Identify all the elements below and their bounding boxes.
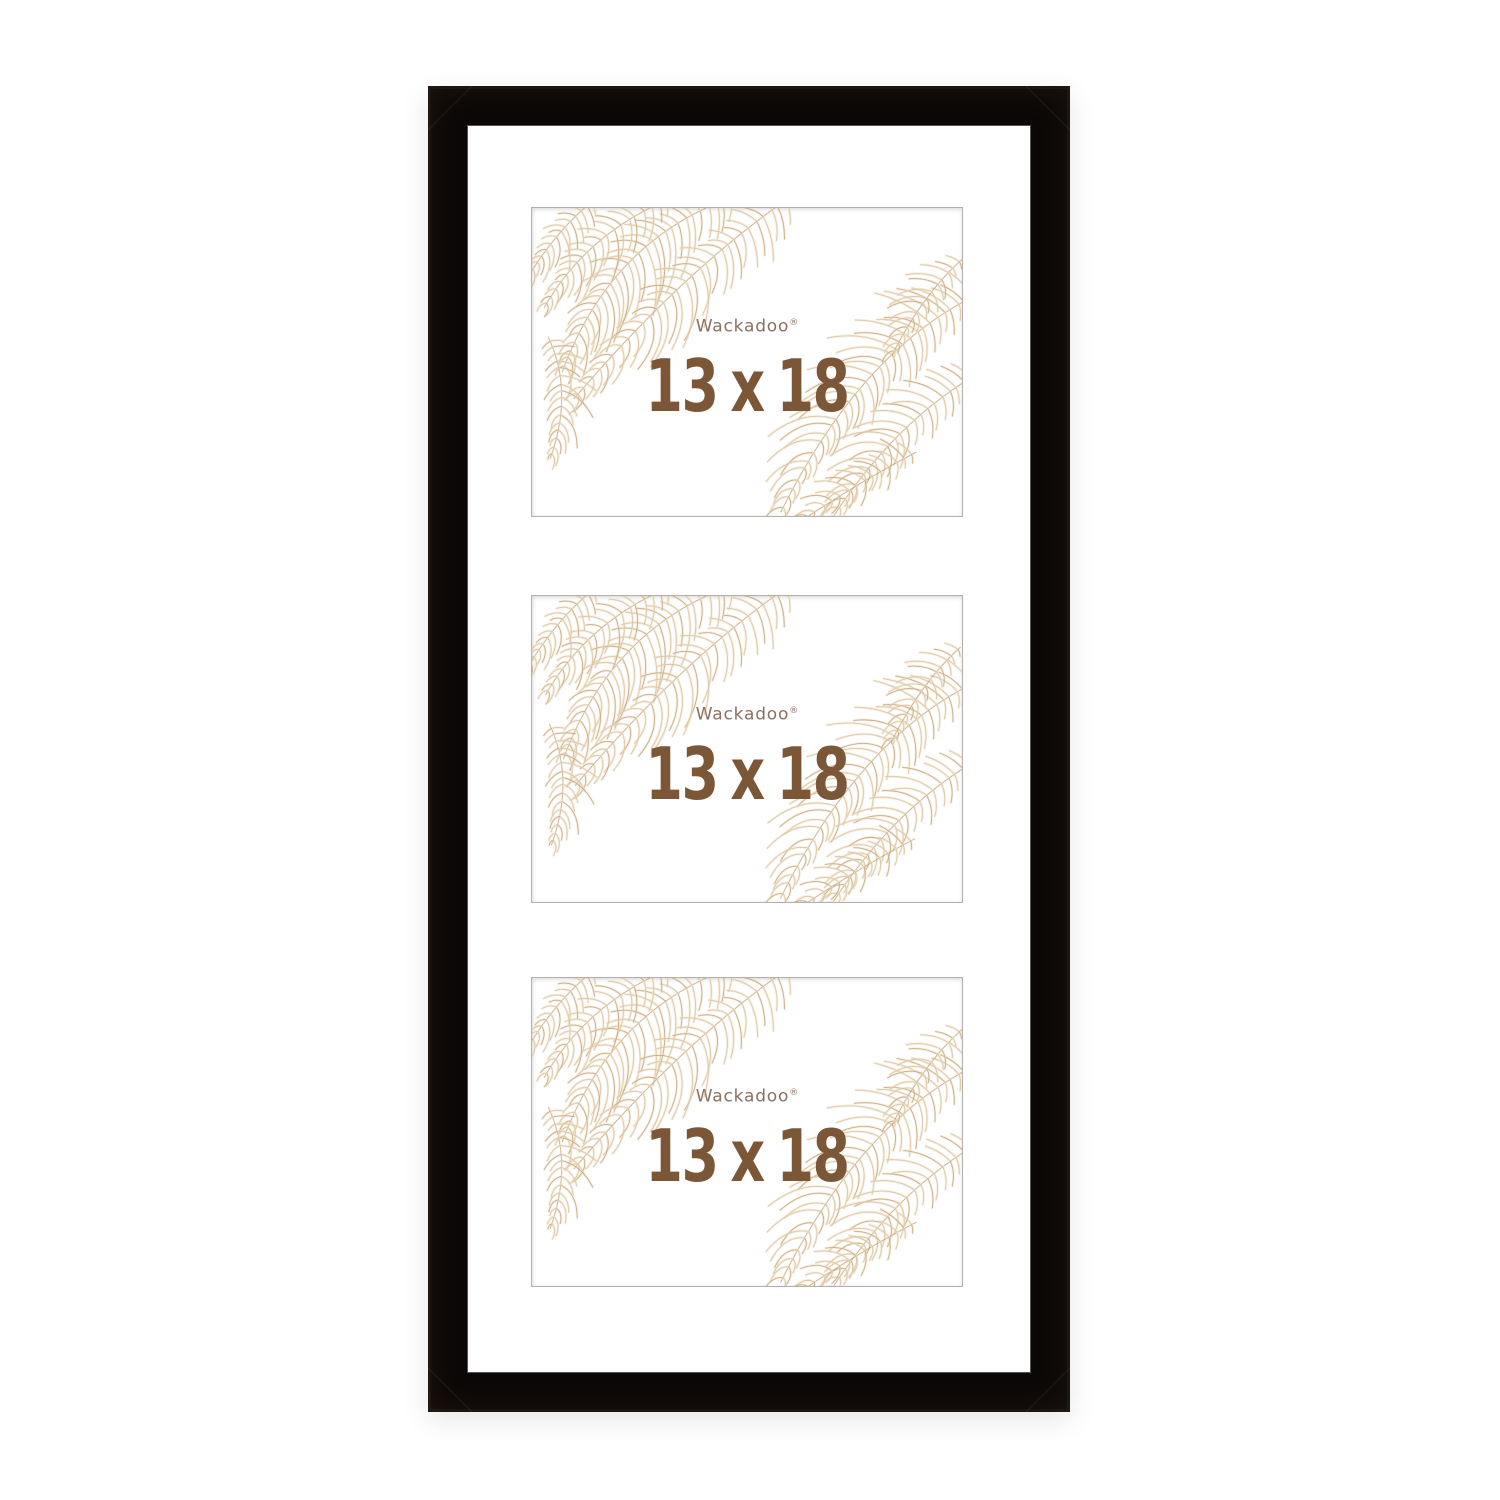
photo-opening-3: Wackadoo® 13 x 18 — [531, 977, 963, 1287]
brand-label: Wackadoo® — [532, 310, 962, 336]
pampas-top-left-illustration — [532, 978, 790, 1239]
brand-label: Wackadoo® — [532, 1080, 962, 1106]
frame-miter-top-right — [1026, 86, 1070, 130]
frame-miter-bottom-right — [1026, 1368, 1070, 1412]
brand-text: Wackadoo — [696, 1087, 789, 1107]
frame-miter-bottom-left — [428, 1368, 472, 1412]
size-label: 13 x 18 — [586, 1116, 909, 1196]
registered-trademark: ® — [789, 1088, 798, 1098]
brand-text: Wackadoo — [696, 317, 789, 337]
size-label: 13 x 18 — [586, 346, 909, 426]
brand-text: Wackadoo — [696, 705, 789, 725]
product-photo: Wackadoo® 13 x 18 Wackadoo® 13 x 18 Wack… — [0, 0, 1500, 1500]
registered-trademark: ® — [789, 706, 798, 716]
frame-miter-top-left — [428, 86, 472, 130]
photo-opening-1: Wackadoo® 13 x 18 — [531, 207, 963, 517]
brand-label: Wackadoo® — [532, 698, 962, 724]
size-label: 13 x 18 — [586, 734, 909, 814]
pampas-top-left-illustration — [532, 596, 790, 855]
pampas-top-left-illustration — [532, 208, 790, 469]
registered-trademark: ® — [789, 318, 798, 328]
mat-board: Wackadoo® 13 x 18 Wackadoo® 13 x 18 Wack… — [468, 126, 1030, 1372]
photo-opening-2: Wackadoo® 13 x 18 — [531, 595, 963, 903]
picture-frame: Wackadoo® 13 x 18 Wackadoo® 13 x 18 Wack… — [428, 86, 1070, 1412]
